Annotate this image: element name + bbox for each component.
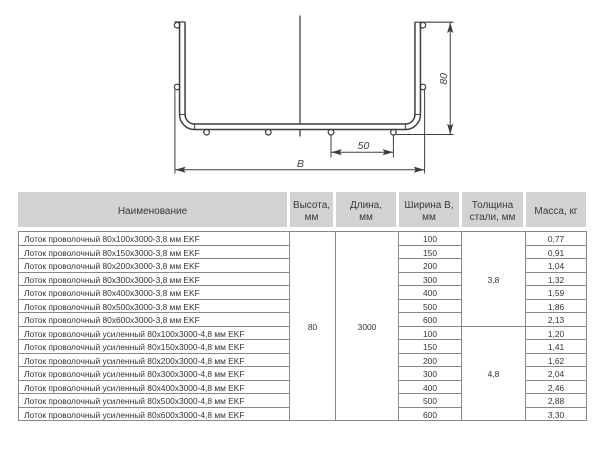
svg-text:B: B: [297, 158, 304, 170]
svg-text:80: 80: [438, 73, 450, 85]
svg-text:50: 50: [358, 140, 370, 152]
